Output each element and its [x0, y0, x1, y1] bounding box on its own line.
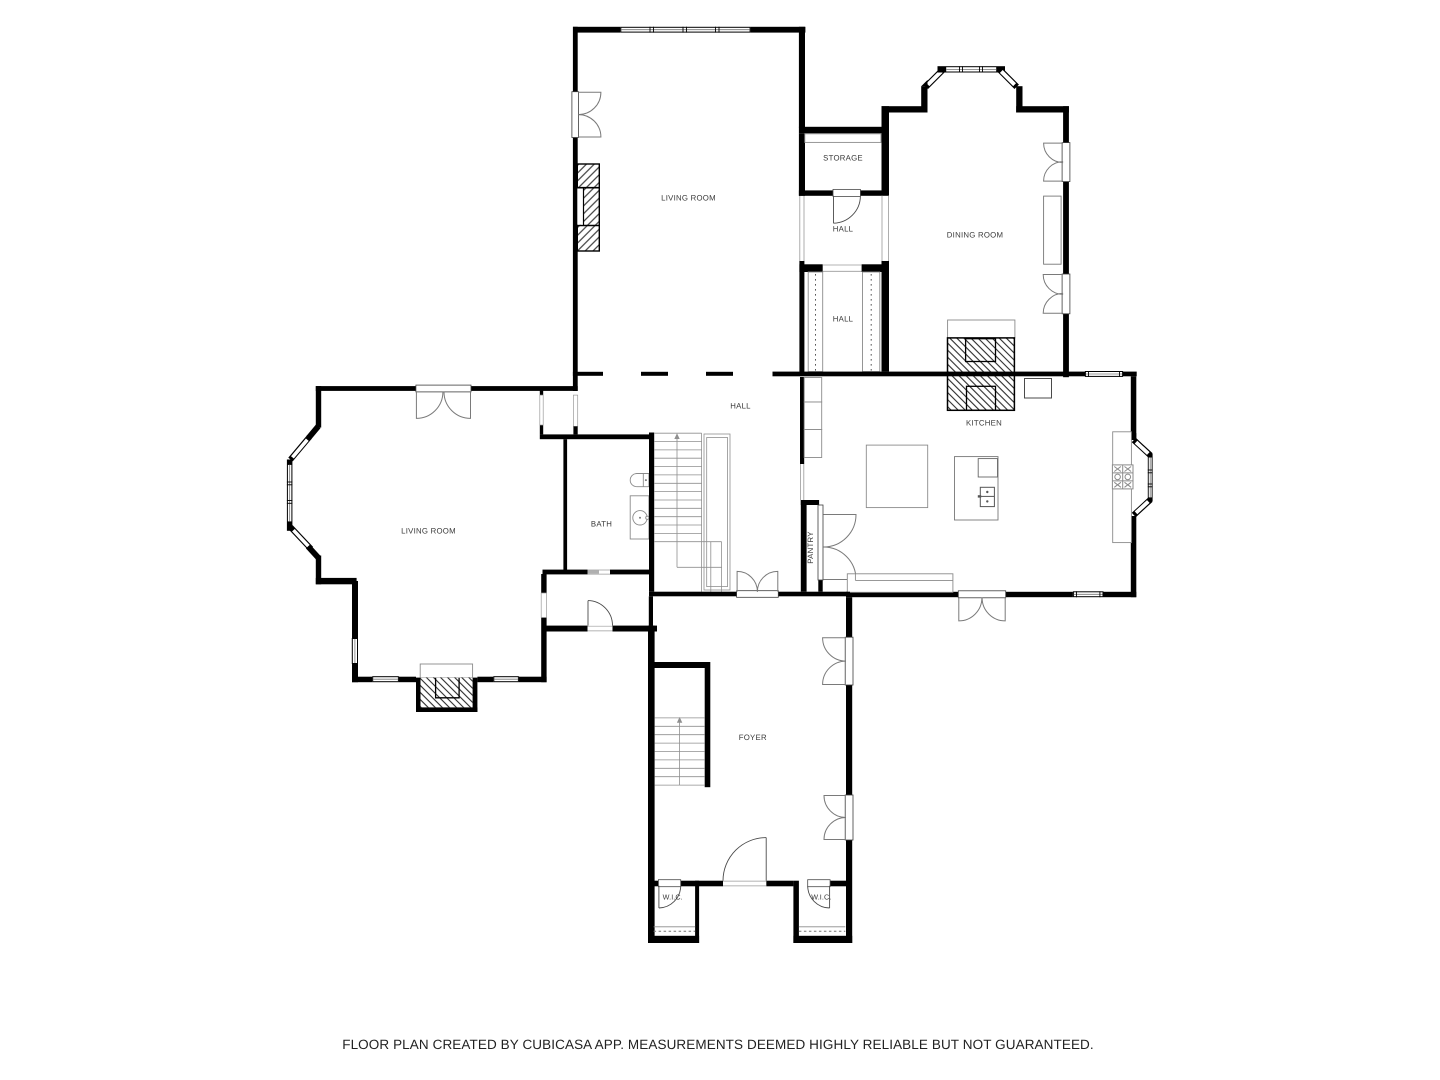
svg-text:HALL: HALL: [730, 402, 751, 411]
svg-text:BATH: BATH: [591, 520, 612, 529]
svg-text:STORAGE: STORAGE: [823, 154, 863, 163]
svg-text:FLOOR PLAN CREATED BY CUBICASA: FLOOR PLAN CREATED BY CUBICASA APP. MEAS…: [342, 1037, 1094, 1052]
svg-text:FOYER: FOYER: [739, 733, 767, 742]
svg-text:W.I.C.: W.I.C.: [663, 893, 683, 902]
svg-text:DINING ROOM: DINING ROOM: [947, 231, 1003, 240]
svg-text:KITCHEN: KITCHEN: [966, 419, 1002, 428]
svg-text:HALL: HALL: [833, 225, 854, 234]
svg-text:W.I.C.: W.I.C.: [811, 893, 831, 902]
svg-text:LIVING ROOM: LIVING ROOM: [661, 194, 716, 203]
svg-text:PANTRY: PANTRY: [806, 531, 815, 564]
svg-text:HALL: HALL: [833, 315, 854, 324]
svg-text:LIVING ROOM: LIVING ROOM: [401, 527, 456, 536]
